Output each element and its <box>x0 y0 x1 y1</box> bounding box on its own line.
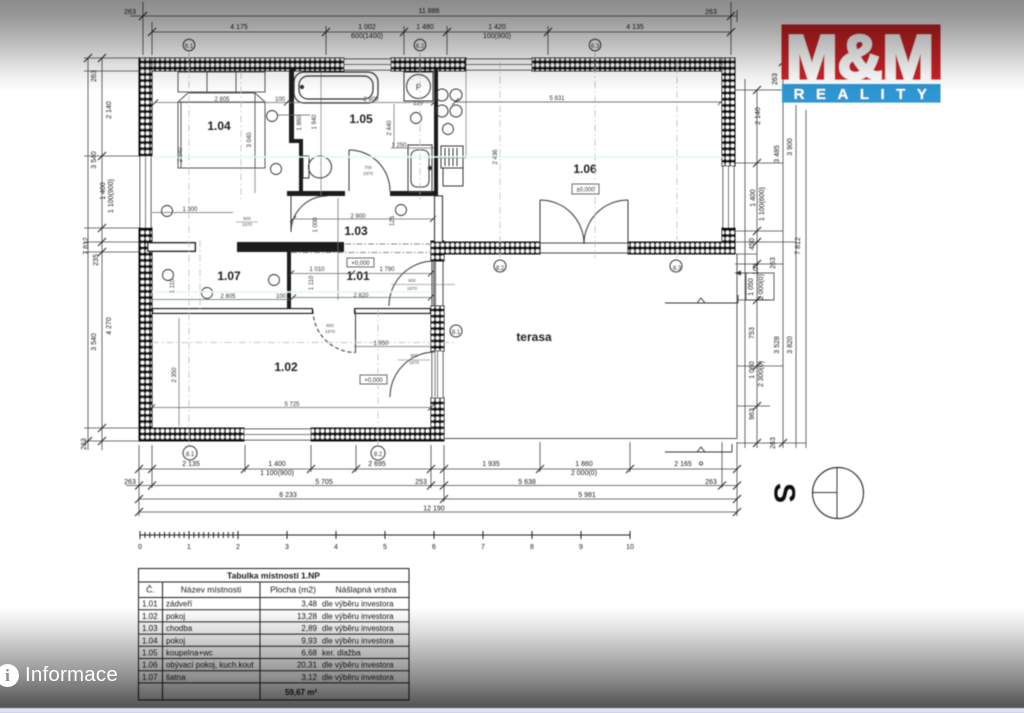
svg-text:1 250: 1 250 <box>391 143 407 149</box>
svg-text:963: 963 <box>749 408 756 420</box>
svg-text:8: 8 <box>530 544 534 551</box>
svg-text:2 436: 2 436 <box>493 149 499 165</box>
svg-text:2 540: 2 540 <box>178 147 184 163</box>
svg-text:Plocha (m2): Plocha (m2) <box>270 585 316 595</box>
svg-text:3 540: 3 540 <box>91 151 98 169</box>
svg-text:2 000(0): 2 000(0) <box>571 470 597 477</box>
svg-text:9: 9 <box>579 544 583 551</box>
svg-text:1 860: 1 860 <box>297 115 303 131</box>
svg-text:Název místnosti: Název místnosti <box>181 585 242 595</box>
svg-text:0: 0 <box>138 544 142 551</box>
svg-text:3 485: 3 485 <box>774 145 781 163</box>
svg-text:2 140: 2 140 <box>106 101 113 119</box>
svg-text:753: 753 <box>749 327 756 339</box>
svg-text:8.1: 8.1 <box>186 452 195 458</box>
svg-text:900: 900 <box>408 278 416 283</box>
svg-text:125: 125 <box>390 215 396 226</box>
svg-text:3 820: 3 820 <box>787 336 794 354</box>
svg-text:4 270: 4 270 <box>106 317 113 335</box>
svg-text:4: 4 <box>334 544 338 551</box>
svg-text:1970: 1970 <box>242 222 253 227</box>
svg-text:8.3: 8.3 <box>673 266 682 272</box>
svg-text:1.06: 1.06 <box>573 162 597 176</box>
svg-text:100: 100 <box>276 294 287 300</box>
svg-text:1 060: 1 060 <box>749 361 756 379</box>
svg-text:100: 100 <box>275 97 286 103</box>
svg-text:3 900: 3 900 <box>787 138 794 156</box>
svg-text:1 935: 1 935 <box>482 461 500 468</box>
svg-text:6 233: 6 233 <box>279 492 297 499</box>
svg-text:800: 800 <box>243 216 251 221</box>
svg-text:1 100(900): 1 100(900) <box>260 470 294 477</box>
svg-text:Tabulka místností 1.NP: Tabulka místností 1.NP <box>227 571 320 581</box>
svg-text:1.02: 1.02 <box>274 360 298 374</box>
svg-text:8.2: 8.2 <box>496 266 505 272</box>
svg-text:1.03: 1.03 <box>344 224 368 238</box>
svg-text:3 528: 3 528 <box>774 336 781 354</box>
svg-text:5 831: 5 831 <box>549 96 565 102</box>
svg-text:Č.: Č. <box>146 585 155 595</box>
svg-text:1 940: 1 940 <box>312 114 318 130</box>
svg-text:1 400: 1 400 <box>100 182 107 200</box>
svg-text:2: 2 <box>236 544 240 551</box>
svg-text:1: 1 <box>187 544 191 551</box>
svg-text:10: 10 <box>626 544 634 551</box>
svg-text:7 812: 7 812 <box>795 237 802 255</box>
svg-text:2 800: 2 800 <box>363 97 379 103</box>
svg-text:1970: 1970 <box>363 171 374 176</box>
svg-text:2 350: 2 350 <box>172 367 178 383</box>
svg-text:3 540: 3 540 <box>91 333 98 351</box>
svg-text:263: 263 <box>124 479 136 486</box>
svg-text:1 860: 1 860 <box>575 461 593 468</box>
svg-text:1 000: 1 000 <box>313 217 319 233</box>
svg-text:7: 7 <box>481 544 485 551</box>
svg-text:263: 263 <box>770 257 777 269</box>
svg-text:3: 3 <box>285 544 289 551</box>
svg-text:1 300: 1 300 <box>182 207 198 213</box>
svg-text:+0,000: +0,000 <box>364 378 383 384</box>
svg-text:253: 253 <box>415 479 427 486</box>
svg-text:120: 120 <box>413 101 424 107</box>
svg-text:5: 5 <box>383 544 387 551</box>
svg-text:2 000(0): 2 000(0) <box>758 274 765 300</box>
svg-text:1 110: 1 110 <box>170 278 176 293</box>
svg-text:1.05: 1.05 <box>349 112 373 126</box>
svg-text:5 638: 5 638 <box>518 479 536 486</box>
svg-text:1 100(900): 1 100(900) <box>108 179 115 213</box>
svg-text:1 010: 1 010 <box>309 267 325 273</box>
svg-text:+0,000: +0,000 <box>351 261 370 267</box>
svg-text:2 805: 2 805 <box>214 97 230 103</box>
svg-text:900: 900 <box>410 353 418 358</box>
svg-text:1970: 1970 <box>407 286 418 291</box>
svg-text:263: 263 <box>770 437 777 449</box>
svg-text:S: S <box>768 483 801 503</box>
svg-text:8.2: 8.2 <box>374 452 383 458</box>
svg-text:2 805: 2 805 <box>220 294 236 300</box>
svg-text:3 040: 3 040 <box>247 132 253 148</box>
svg-text:450: 450 <box>749 238 756 250</box>
svg-text:1.04: 1.04 <box>207 119 231 133</box>
svg-text:1970: 1970 <box>409 360 420 365</box>
svg-text:2 440: 2 440 <box>387 120 393 136</box>
svg-text:263: 263 <box>705 479 717 486</box>
svg-text:2 900: 2 900 <box>350 214 366 220</box>
svg-text:6: 6 <box>432 544 436 551</box>
svg-text:terasa: terasa <box>516 330 552 344</box>
svg-text:700: 700 <box>364 165 372 170</box>
svg-text:2 695: 2 695 <box>368 461 386 468</box>
svg-text:235: 235 <box>93 254 100 266</box>
svg-text:1.07: 1.07 <box>217 269 241 283</box>
svg-text:12 190: 12 190 <box>423 506 445 513</box>
svg-text:±0,000: ±0,000 <box>576 188 595 194</box>
svg-text:8.1: 8.1 <box>452 330 461 336</box>
svg-text:1 950: 1 950 <box>373 341 389 347</box>
svg-text:1 400: 1 400 <box>268 461 286 468</box>
svg-text:2 165: 2 165 <box>674 461 692 468</box>
svg-text:1 400: 1 400 <box>750 189 757 207</box>
svg-text:263: 263 <box>81 438 88 450</box>
svg-text:1 050: 1 050 <box>748 278 755 296</box>
svg-text:1 790: 1 790 <box>379 267 395 273</box>
svg-text:1 100(600): 1 100(600) <box>759 187 766 221</box>
svg-text:5 725: 5 725 <box>284 402 300 408</box>
svg-text:1 110: 1 110 <box>309 275 315 290</box>
svg-text:2 300(0): 2 300(0) <box>758 361 765 387</box>
svg-text:5 981: 5 981 <box>578 492 596 499</box>
svg-text:800: 800 <box>326 323 334 328</box>
svg-text:5 705: 5 705 <box>315 479 333 486</box>
svg-text:1970: 1970 <box>325 329 336 334</box>
svg-text:2 135: 2 135 <box>182 461 200 468</box>
svg-text:2 820: 2 820 <box>353 293 369 299</box>
svg-text:7 812: 7 812 <box>83 237 90 255</box>
svg-text:Nášlapná vrstva: Nášlapná vrstva <box>336 585 397 595</box>
svg-text:2 140: 2 140 <box>755 107 762 125</box>
